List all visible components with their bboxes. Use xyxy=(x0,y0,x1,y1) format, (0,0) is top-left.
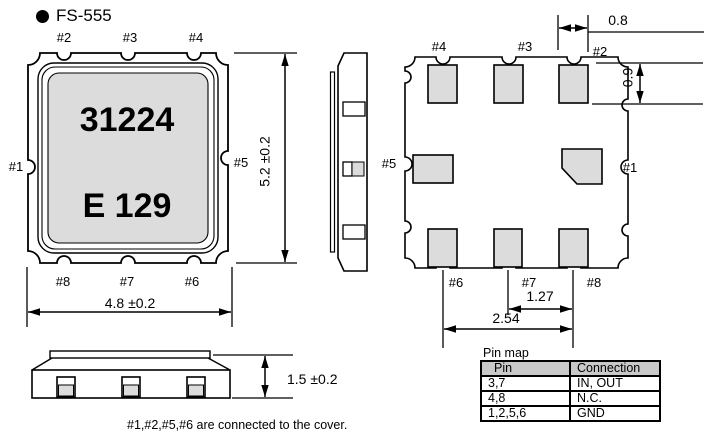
side-view-drawing xyxy=(318,42,380,287)
cover-note: #1,#2,#5,#6 are connected to the cover. xyxy=(127,418,347,432)
pad-6 xyxy=(428,229,457,267)
pin-cell: 1,2,5,6 xyxy=(481,406,570,421)
cover-side-strip xyxy=(331,72,335,252)
side-electrode-mid xyxy=(343,162,352,176)
pin-label-3-top: #3 xyxy=(116,31,144,45)
pin-label-8-bottom: #8 xyxy=(580,276,608,290)
dim-pad-height-text: 0.9 xyxy=(621,60,636,96)
dim-thickness-text: 1.5 ±0.2 xyxy=(287,372,359,387)
marking-line1: 31224 xyxy=(80,101,175,139)
pin-label-8-top: #8 xyxy=(49,275,77,289)
pin-map-header-row: Pin Connection xyxy=(481,361,660,376)
side-electrode-top xyxy=(343,102,365,116)
connection-cell: GND xyxy=(570,406,660,421)
pad-3 xyxy=(494,65,523,103)
dim-span-text: 2.54 xyxy=(483,311,529,326)
pad-8 xyxy=(559,229,588,267)
pad-2 xyxy=(559,65,588,103)
pin-map-caption: Pin map xyxy=(483,346,529,360)
pin-label-5-bottom: #5 xyxy=(377,157,401,171)
marking-line2: E 129 xyxy=(83,187,172,225)
dim-pad-width-text: 0.8 xyxy=(600,13,636,28)
datasheet-drawing: FS-555 31224 E 129 #2 #3 #4 xyxy=(0,0,706,447)
pin-label-7-top: #7 xyxy=(113,275,141,289)
pin-cell: 4,8 xyxy=(481,391,570,406)
side-electrode-bottom xyxy=(343,225,365,239)
pin-label-5-top: #5 xyxy=(229,156,253,170)
pad-4 xyxy=(428,65,457,103)
pin-cell: 3,7 xyxy=(481,376,570,391)
cover-slants xyxy=(32,358,230,370)
pin-map-row: 3,7 IN, OUT xyxy=(481,376,660,391)
pin-label-2-top: #2 xyxy=(50,31,78,45)
pin-label-6-top: #6 xyxy=(178,275,206,289)
pin-label-3-bottom: #3 xyxy=(511,40,539,54)
side-electrode-mid-pad xyxy=(352,162,364,176)
pin-map-table: Pin Connection 3,7 IN, OUT 4,8 N.C. 1,2,… xyxy=(480,360,661,422)
dim-height-text: 5.2 ±0.2 xyxy=(258,127,273,197)
pin-map-row: 1,2,5,6 GND xyxy=(481,406,660,421)
bullet-icon xyxy=(36,10,49,23)
pin-map-row: 4,8 N.C. xyxy=(481,391,660,406)
pad-7 xyxy=(494,229,522,267)
pin-label-1-bottom: #1 xyxy=(618,161,642,175)
dim-width-text: 4.8 ±0.2 xyxy=(90,296,170,311)
pin-label-6-bottom: #6 xyxy=(442,276,470,290)
pin-map-col-connection: Connection xyxy=(570,361,660,376)
connection-cell: N.C. xyxy=(570,391,660,406)
side-profile-drawing xyxy=(25,345,305,407)
pin-label-4-top: #4 xyxy=(182,31,210,45)
pin-label-4-bottom: #4 xyxy=(425,40,453,54)
pin-label-1-top: #1 xyxy=(4,160,28,174)
cover-plate xyxy=(50,351,210,358)
connection-cell: IN, OUT xyxy=(570,376,660,391)
pad-5 xyxy=(413,155,453,183)
figure-title: FS-555 xyxy=(36,6,112,26)
dim-pitch-text: 1.27 xyxy=(517,289,563,304)
part-number: FS-555 xyxy=(56,6,112,26)
pin-label-2-bottom: #2 xyxy=(586,45,614,59)
pin-map-col-pin: Pin xyxy=(481,361,570,376)
